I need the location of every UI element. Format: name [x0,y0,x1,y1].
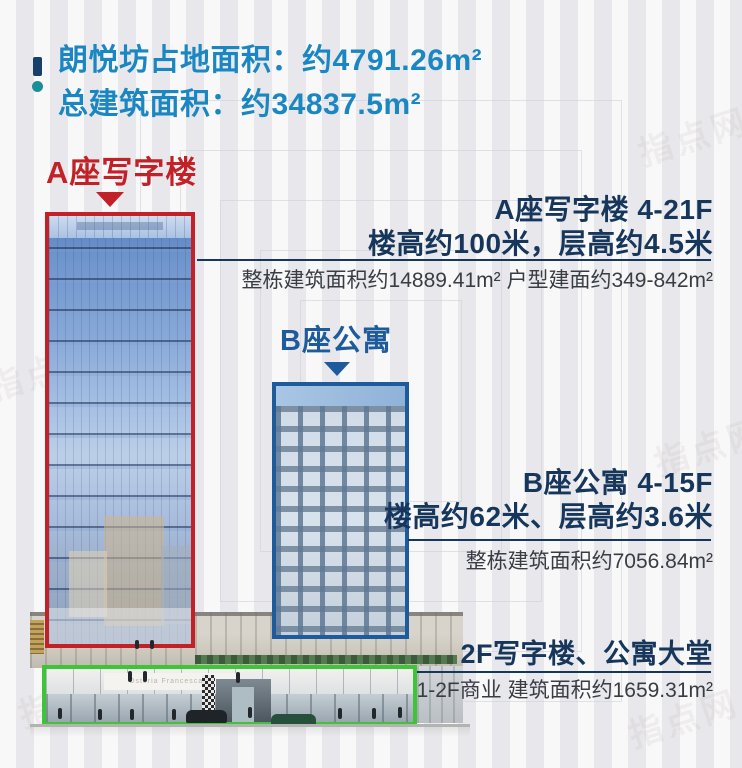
tower-a-leader-line [197,259,711,261]
pedestrian [98,709,102,720]
pedestrian [130,709,134,720]
tower-b-crown [276,386,405,406]
pedestrian [128,671,132,682]
pedestrian [143,671,147,682]
tower-a-building [45,212,195,648]
podium-info-detail: 1-2F商业 建筑面积约1659.31m² [417,680,713,701]
pedestrian [236,672,240,683]
tower-b-info-detail: 整栋建筑面积约7056.84m² [466,551,713,572]
tower-b-info-subtitle: 楼高约62米、层高约3.6米 [384,503,713,531]
tower-a-info-detail: 整栋建筑面积约14889.41m² 户型建面约349-842m² [242,270,713,291]
pedestrian [150,640,154,649]
podium-info-title: 2F写字楼、公寓大堂 [460,641,713,668]
total-floor-area-text: 总建筑面积：约34837.5m² [58,90,421,120]
glass-reflection [49,608,191,644]
tower-a-info-title: A座写字楼 4-21F [494,196,713,224]
pedestrian [398,707,402,718]
pedestrian [372,708,376,719]
tower-b-info-title: B座公寓 4-15F [523,469,713,497]
pedestrian [135,640,139,649]
pedestrian [58,708,62,719]
infographic-canvas: 指点网 指点网 指点网 指点网 指点网 朗悦坊占地面积：约4791.26m² 总… [0,0,742,768]
pedestrian [248,707,252,718]
watermark: 指点网 [631,94,742,176]
car [186,710,227,723]
bullet-icon [32,81,43,92]
pedestrian [338,708,342,719]
tower-b-arrow-down-icon [324,362,350,376]
tower-a-info-subtitle: 楼高约100米，层高约4.5米 [368,230,713,258]
terrace-hedge [195,655,457,664]
tower-a-arrow-down-icon [96,192,124,207]
tower-a-label: A座写字楼 [46,157,197,188]
tower-a-parapet [77,222,163,230]
podium-leader-line [417,671,711,673]
bullet-icon [33,57,42,76]
site-area-text: 朗悦坊占地面积：约4791.26m² [58,46,482,76]
tower-b-leader-line [408,539,711,541]
tower-b-label: B座公寓 [280,327,392,356]
pedestrian [172,709,176,720]
podium-side-detail [30,620,44,654]
ground-shadow [30,727,470,737]
